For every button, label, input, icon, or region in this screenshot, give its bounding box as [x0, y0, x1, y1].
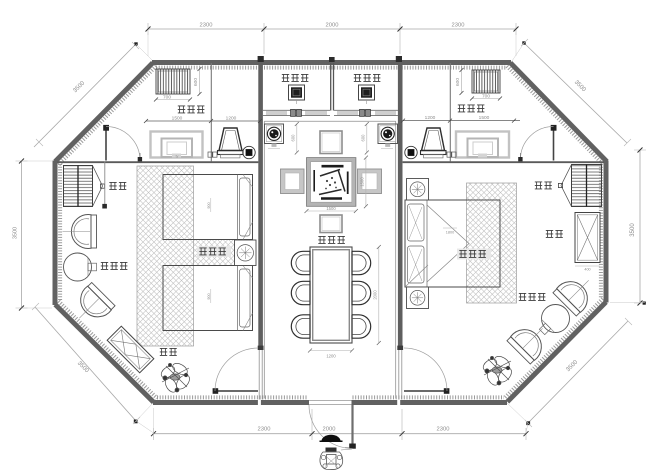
svg-text:1500: 1500: [172, 116, 183, 122]
svg-text:700: 700: [482, 93, 490, 99]
svg-text:600: 600: [455, 78, 461, 86]
svg-text:2000: 2000: [326, 23, 339, 29]
svg-text:600: 600: [290, 134, 295, 142]
svg-text:1500: 1500: [326, 206, 336, 211]
svg-text:2300: 2300: [452, 23, 465, 29]
svg-text:900: 900: [207, 293, 211, 299]
svg-text:3500: 3500: [13, 227, 19, 239]
svg-text:400: 400: [584, 268, 590, 272]
svg-text:1200: 1200: [425, 115, 436, 121]
svg-text:1800: 1800: [446, 231, 454, 235]
svg-text:1200: 1200: [226, 116, 237, 122]
svg-text:2300: 2300: [258, 427, 271, 433]
svg-text:600: 600: [360, 134, 365, 142]
svg-text:3500: 3500: [630, 223, 636, 237]
svg-text:tv: tv: [176, 155, 179, 159]
svg-text:600: 600: [193, 78, 199, 86]
svg-text:1200: 1200: [326, 354, 336, 359]
svg-text:700: 700: [163, 94, 171, 100]
svg-text:900: 900: [207, 202, 211, 208]
svg-text:2300: 2300: [437, 427, 450, 433]
svg-text:1500: 1500: [479, 115, 490, 121]
svg-text:2300: 2300: [200, 23, 213, 29]
svg-text:2000: 2000: [372, 290, 377, 300]
svg-text:2000: 2000: [323, 427, 336, 433]
svg-text:1500: 1500: [360, 177, 365, 187]
